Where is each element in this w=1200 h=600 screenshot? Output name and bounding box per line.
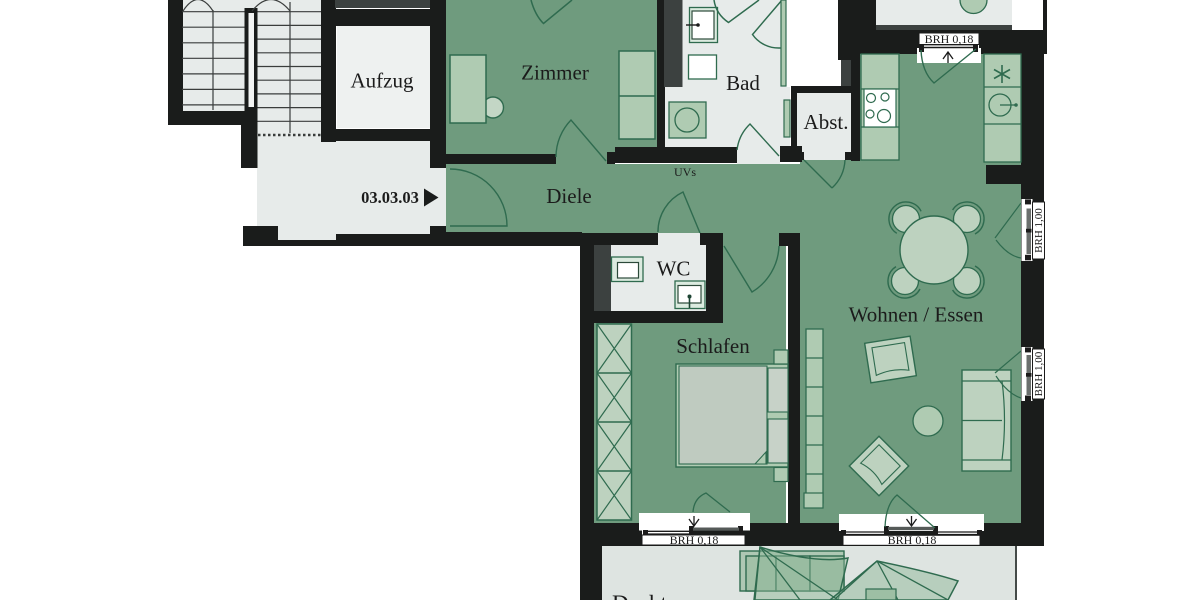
svg-text:Abst.: Abst. <box>804 110 849 134</box>
svg-text:BRH 0,18: BRH 0,18 <box>925 32 974 46</box>
svg-text:BRH 0,18: BRH 0,18 <box>888 533 937 547</box>
svg-text:Bad: Bad <box>726 71 760 95</box>
svg-text:BRH 1,00: BRH 1,00 <box>1033 208 1045 253</box>
svg-text:UVs: UVs <box>674 165 696 179</box>
svg-text:BRH 0,18: BRH 0,18 <box>670 533 719 547</box>
svg-text:Schlafen: Schlafen <box>676 334 750 358</box>
svg-text:Dachterrasse: Dachterrasse <box>612 591 731 600</box>
svg-text:Wohnen / Essen: Wohnen / Essen <box>849 303 984 327</box>
svg-text:WC: WC <box>657 257 691 281</box>
svg-text:BRH 1,00: BRH 1,00 <box>1033 351 1045 396</box>
svg-text:Aufzug: Aufzug <box>351 69 414 93</box>
svg-text:Diele: Diele <box>546 184 591 208</box>
svg-text:Zimmer: Zimmer <box>521 61 589 85</box>
svg-text:03.03.03: 03.03.03 <box>361 188 419 207</box>
